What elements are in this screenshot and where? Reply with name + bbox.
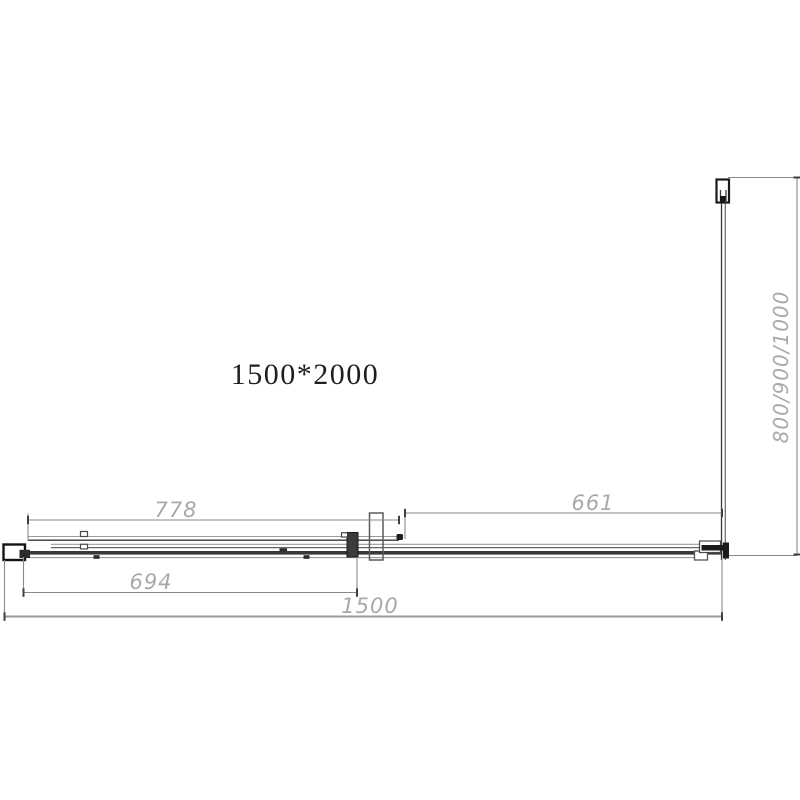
door-handle (347, 533, 358, 558)
door-clip-mid (280, 548, 288, 551)
door-handle-clip (342, 533, 348, 537)
size-title: 1500*2000 (231, 358, 380, 391)
roller-stop (397, 534, 404, 540)
dimension-694: 694 (24, 557, 358, 597)
rail-stop-left (94, 555, 100, 559)
dim-1500-label: 1500 (341, 594, 398, 618)
corner-bracket-clamp-bar (702, 545, 727, 551)
side-panel (717, 180, 730, 561)
dimension-1500: 1500 (5, 559, 723, 621)
corner-bracket (695, 541, 730, 560)
wall-profile-glass-clamp (720, 196, 726, 203)
bottom-rail (25, 551, 722, 555)
dimension-side-depth: 800/900/1000 (728, 177, 800, 556)
shower-enclosure-top-view-drawing: 800/900/1000 (0, 0, 800, 800)
side-depth-label: 800/900/1000 (769, 291, 793, 444)
technical-drawing-canvas: 800/900/1000 (0, 0, 800, 800)
corner-bracket-vertical-bar (723, 543, 729, 559)
dim-778-label: 778 (154, 498, 197, 522)
dim-661-label: 661 (571, 491, 614, 515)
dimension-661: 661 (405, 491, 722, 539)
rail-stop-mid (304, 555, 310, 559)
left-wall-profile-clamp (20, 550, 31, 558)
dim-694-label: 694 (129, 570, 172, 594)
panel-clip-top (81, 532, 88, 537)
panel-clip-bottom (81, 544, 88, 549)
